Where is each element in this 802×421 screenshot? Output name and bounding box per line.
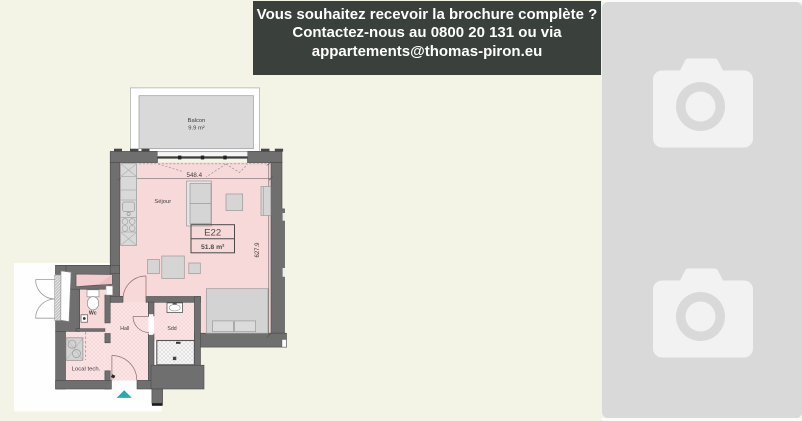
svg-text:548.4: 548.4: [187, 172, 203, 179]
svg-text:Wc: Wc: [89, 311, 97, 317]
svg-text:Séjour: Séjour: [154, 199, 171, 205]
svg-text:Local tech.: Local tech.: [72, 367, 101, 373]
svg-text:9.9 m²: 9.9 m²: [188, 125, 204, 131]
svg-text:Sdd: Sdd: [167, 326, 176, 332]
svg-text:Balcon: Balcon: [188, 118, 206, 124]
svg-text:Hall: Hall: [120, 326, 129, 332]
svg-text:627.9: 627.9: [255, 242, 261, 258]
svg-text:E22: E22: [204, 228, 221, 239]
svg-text:51.8 m²: 51.8 m²: [201, 244, 225, 251]
